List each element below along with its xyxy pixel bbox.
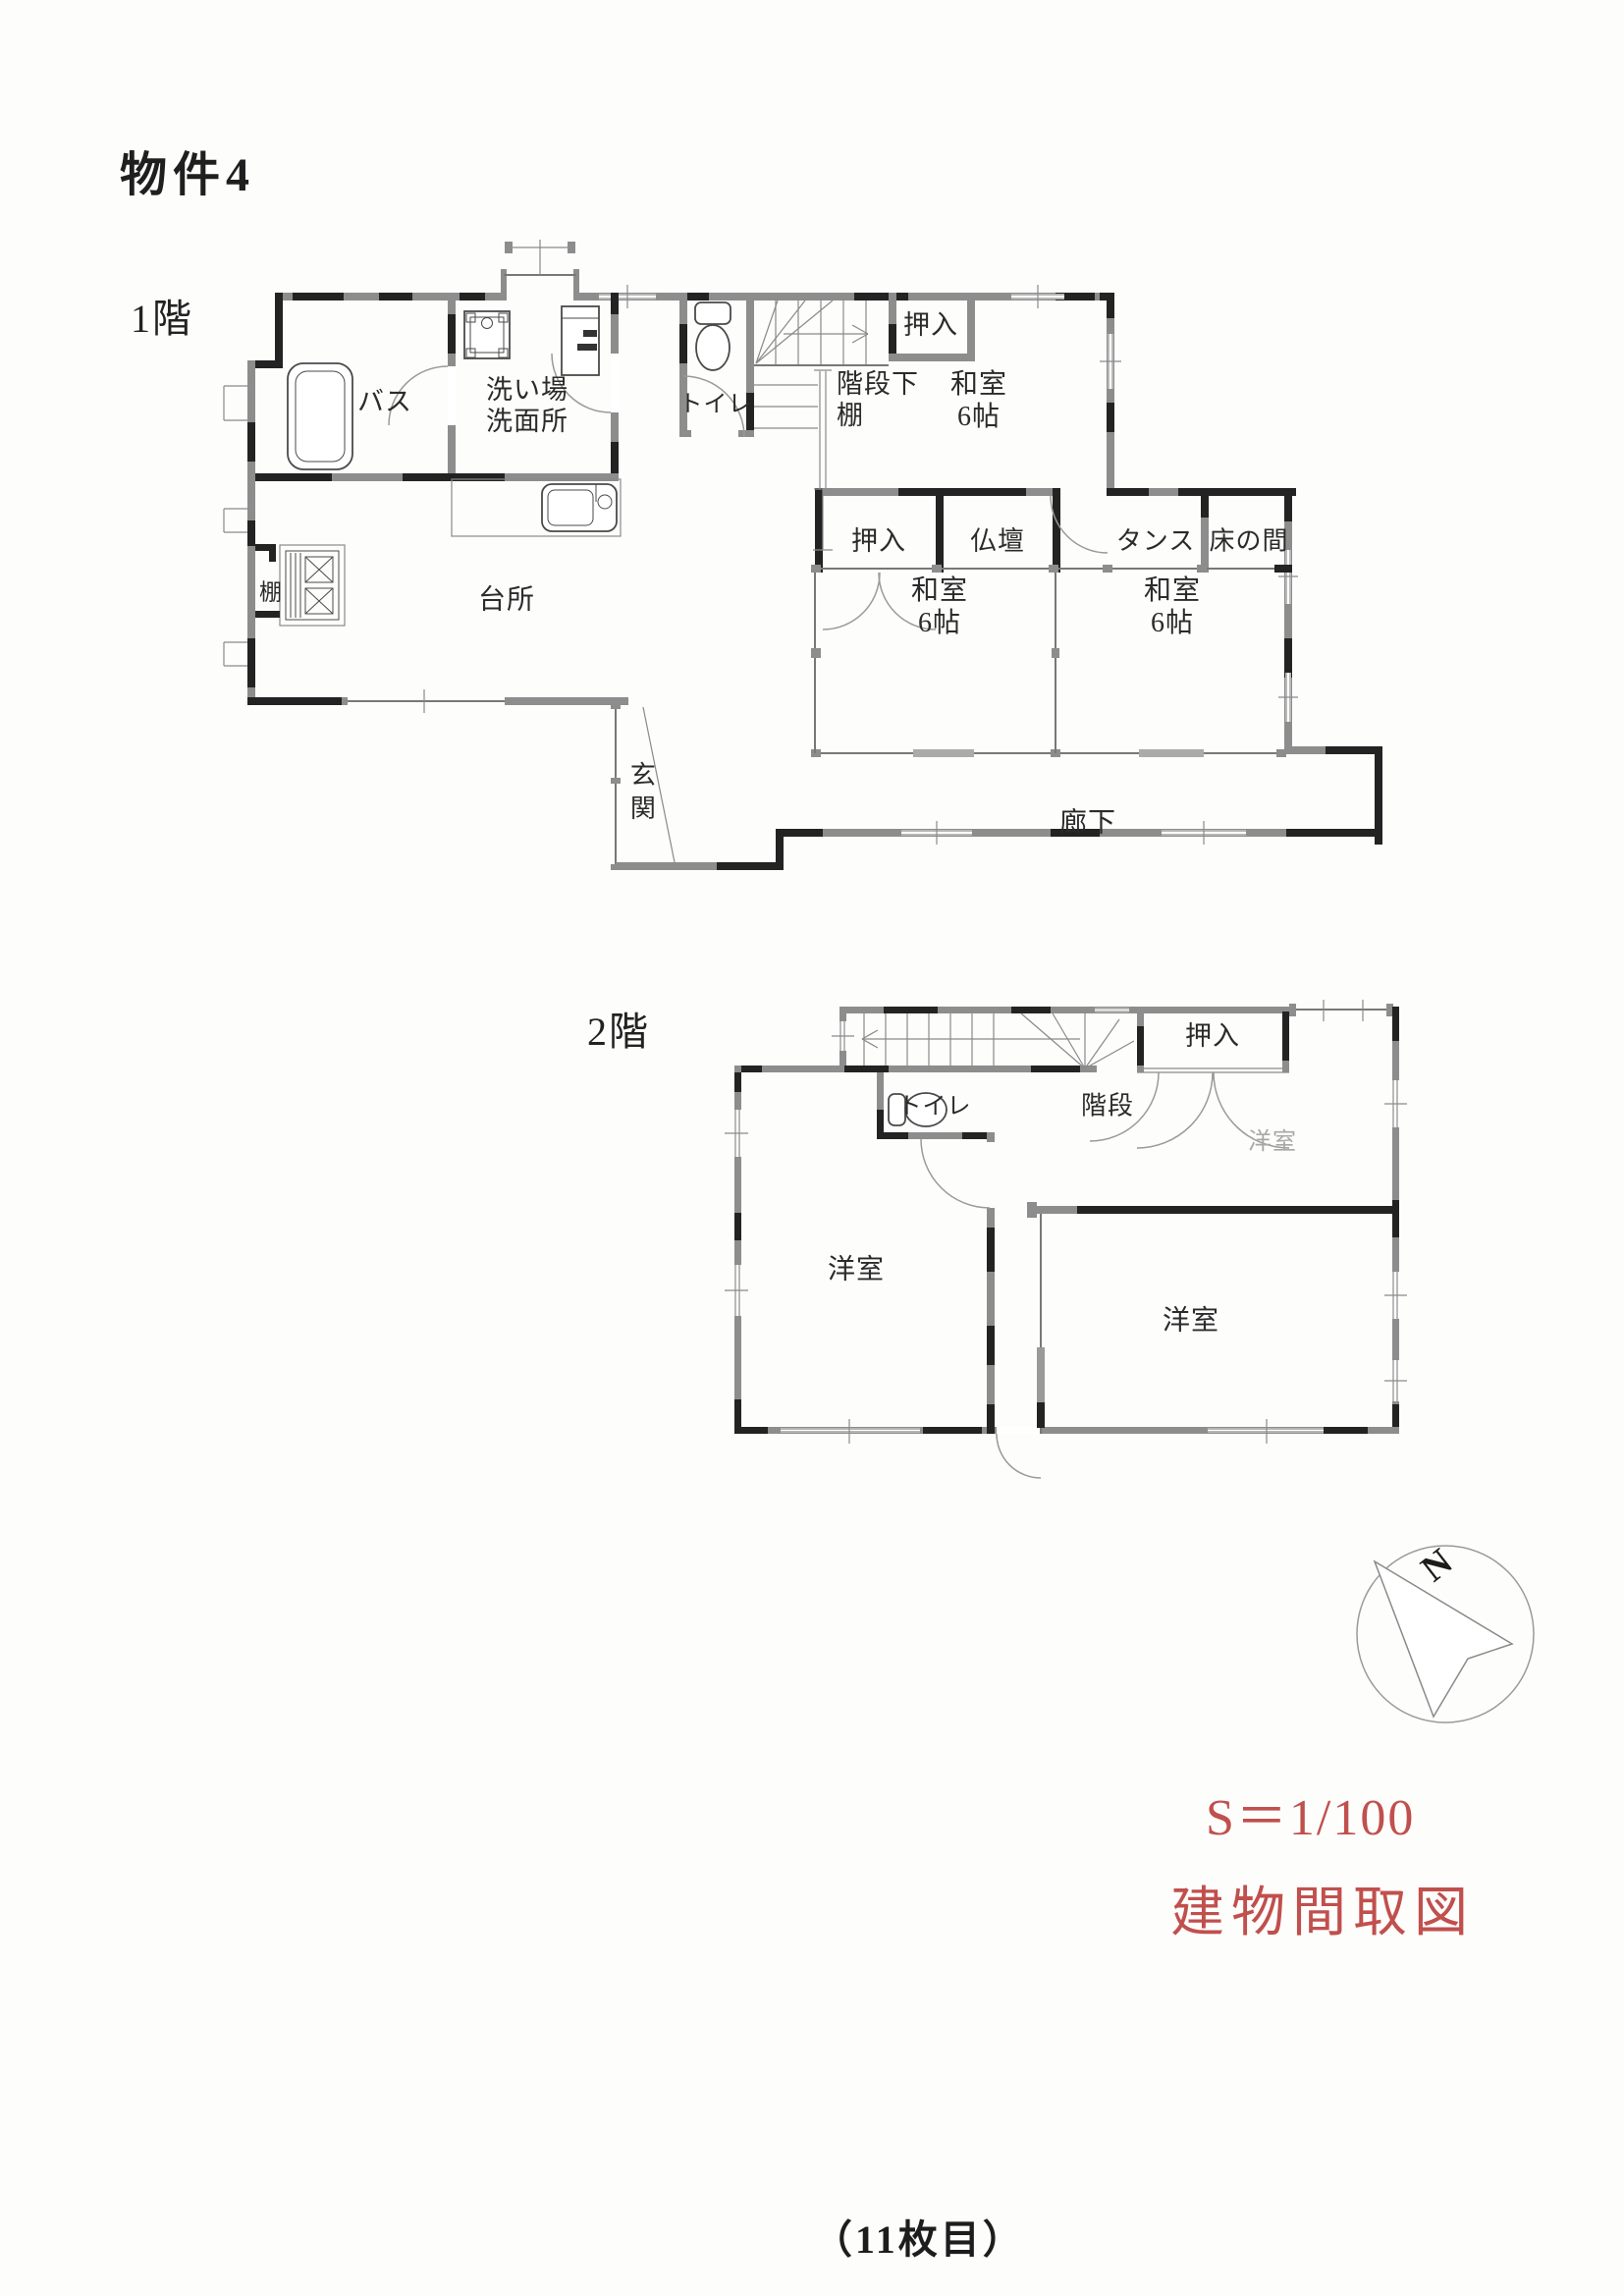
washing-machine-icon	[464, 311, 510, 358]
scale-label: S＝1/100	[1206, 1776, 1415, 1849]
bathtub-icon	[288, 363, 352, 469]
room-label-tatami-upper: 和室 6帖	[950, 368, 1007, 433]
page-title: 物件4	[120, 136, 255, 204]
floor2-label: 2階	[587, 1000, 650, 1057]
room-label-closet-2f: 押入	[1185, 1021, 1240, 1053]
door-arc	[823, 573, 880, 629]
door-arc	[1137, 1072, 1213, 1148]
compass: N	[1335, 1524, 1561, 1765]
page-number: （11枚目）	[813, 2208, 1025, 2265]
bay-window	[501, 240, 579, 301]
stairs-1f-icon	[754, 301, 889, 365]
room-label-under-stairs-shelf: 階段下 棚	[837, 369, 919, 432]
room-label-shelf: 棚	[259, 578, 283, 605]
room-label-western-upper: 洋室	[1248, 1128, 1297, 1156]
room-label-tokonoma: 床の間	[1209, 527, 1288, 558]
stove-icon	[280, 545, 345, 626]
room-label-kitchen: 台所	[478, 583, 535, 616]
toilet-icon	[695, 302, 731, 370]
room-label-western-left: 洋室	[828, 1253, 885, 1285]
room-label-western-right: 洋室	[1163, 1304, 1219, 1337]
room-label-entrance: 玄関	[625, 761, 656, 828]
room-label-closet-middle: 押入	[851, 526, 906, 558]
room-label-corridor: 廊下	[1059, 806, 1116, 839]
room-label-washroom: 洗い場 洗面所	[486, 375, 568, 438]
room-label-stairs-2f: 階段	[1081, 1092, 1134, 1122]
floor1-plan	[167, 226, 1404, 894]
stairs-2f-icon	[862, 1013, 1134, 1068]
kitchen-sink-icon	[452, 479, 621, 536]
room-label-closet-upper-1f: 押入	[903, 310, 958, 342]
compass-north-text: N	[1414, 1541, 1460, 1590]
room-label-tatami-left: 和室 6帖	[911, 574, 968, 639]
vanity-sink-icon	[562, 306, 599, 375]
room-label-toilet-1f: トイレ	[679, 391, 753, 418]
room-label-butsudan: 仏壇	[970, 526, 1025, 558]
drawing-type-label: 建物間取図	[1170, 1868, 1475, 1946]
room-label-tansu: タンス	[1116, 527, 1195, 558]
room-label-toilet-2f: トイレ	[898, 1093, 972, 1121]
scanned-floorplan-page: 物件4 1階 2階	[0, 0, 1624, 2296]
door-arc	[997, 1434, 1041, 1478]
door-arc	[921, 1139, 990, 1208]
room-label-tatami-right: 和室 6帖	[1144, 574, 1201, 639]
floor2-plan	[687, 982, 1453, 1532]
room-label-bath: バス	[357, 387, 412, 418]
